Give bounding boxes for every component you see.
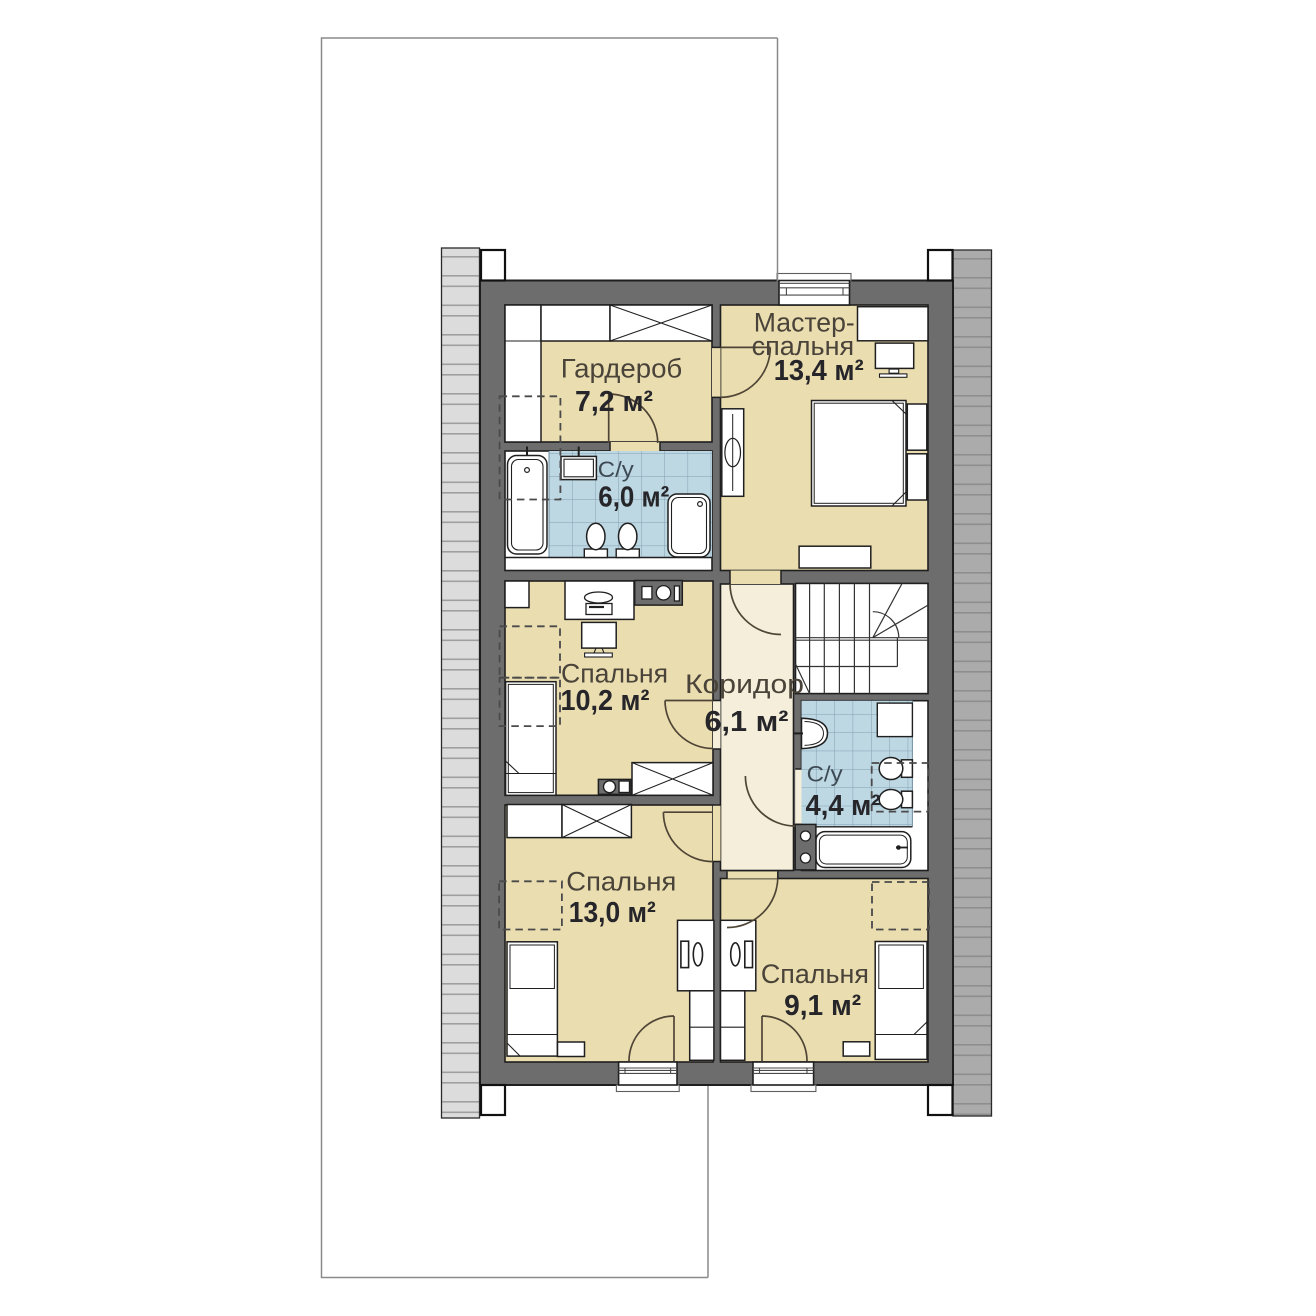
svg-text:Спальня: Спальня bbox=[566, 867, 676, 897]
svg-text:4,4 м²: 4,4 м² bbox=[806, 790, 881, 822]
svg-text:10,2 м²: 10,2 м² bbox=[561, 685, 650, 717]
svg-text:Спальня: Спальня bbox=[561, 659, 668, 689]
svg-text:9,1 м²: 9,1 м² bbox=[784, 990, 861, 1022]
svg-text:Спальня: Спальня bbox=[761, 959, 869, 989]
svg-text:13,4 м²: 13,4 м² bbox=[774, 355, 864, 387]
svg-text:7,2 м²: 7,2 м² bbox=[575, 386, 653, 418]
svg-text:С/у: С/у bbox=[807, 762, 844, 787]
svg-text:6,0 м²: 6,0 м² bbox=[598, 482, 669, 514]
svg-text:Гардероб: Гардероб bbox=[561, 354, 683, 384]
svg-text:С/у: С/у bbox=[598, 457, 635, 482]
svg-text:Коридор: Коридор bbox=[685, 669, 804, 699]
svg-text:13,0 м²: 13,0 м² bbox=[569, 897, 656, 929]
svg-text:6,1 м²: 6,1 м² bbox=[705, 706, 789, 738]
